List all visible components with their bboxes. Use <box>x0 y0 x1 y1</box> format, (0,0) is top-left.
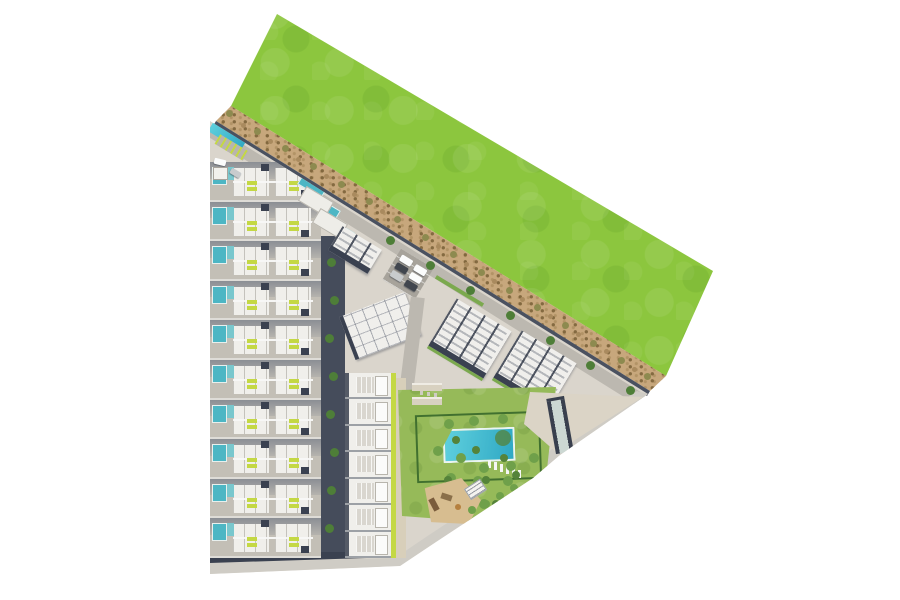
development-ground <box>0 0 900 600</box>
lime-awning <box>289 543 299 547</box>
townhouse-row <box>209 479 321 519</box>
lime-awning <box>247 339 257 343</box>
lime-awning <box>289 425 299 429</box>
lime-awning <box>247 543 257 547</box>
lime-awning <box>247 227 257 231</box>
pool-deck <box>227 523 234 536</box>
dark-roof-hatch <box>261 283 269 290</box>
roof-ridge <box>233 419 313 421</box>
roof-panel <box>356 403 374 419</box>
apartment-unit <box>345 505 391 531</box>
dark-roof-hatch <box>261 164 269 171</box>
pool-deck <box>227 325 234 338</box>
shrub-row <box>226 110 233 117</box>
lime-awning <box>289 537 299 541</box>
roof-terrace <box>375 535 388 555</box>
apartment-unit <box>345 479 391 505</box>
pool-deck <box>227 246 234 259</box>
dark-roof-hatch <box>301 428 309 435</box>
garden-trees <box>444 419 454 429</box>
townhouse-row <box>209 241 321 281</box>
private-pool <box>212 405 227 423</box>
roof-ridge <box>233 339 313 341</box>
lime-awning <box>247 221 257 225</box>
dark-roof-hatch <box>301 269 309 276</box>
roof-terrace <box>375 482 388 502</box>
lime-awning <box>289 419 299 423</box>
apartment-strip <box>345 373 391 558</box>
dark-roof-hatch <box>261 441 269 448</box>
lime-awning <box>289 504 299 508</box>
dark-roof-hatch <box>301 388 309 395</box>
car-park <box>382 249 433 299</box>
road-palm-trees <box>386 236 395 245</box>
roof-ridge <box>233 379 313 381</box>
alley-palm-trees <box>327 258 336 267</box>
lime-awning <box>247 300 257 304</box>
lime-awning <box>289 498 299 502</box>
roof-ridge <box>233 221 313 223</box>
roof-ridge <box>233 300 313 302</box>
private-pool <box>212 444 227 462</box>
roof-panel <box>356 536 374 552</box>
roof-terrace <box>375 429 388 449</box>
roof-ridge <box>233 458 313 460</box>
roof-ridge <box>233 537 313 539</box>
lime-awning <box>247 266 257 270</box>
lime-awning <box>247 306 257 310</box>
pool-deck <box>227 484 234 497</box>
private-pool <box>212 246 227 264</box>
lime-awning <box>247 379 257 383</box>
lime-awning <box>289 385 299 389</box>
lime-awning <box>289 464 299 468</box>
lime-awning <box>247 464 257 468</box>
roof-ridge <box>233 498 313 500</box>
private-pool <box>212 484 227 502</box>
lime-awning <box>289 339 299 343</box>
dark-roof-hatch <box>261 204 269 211</box>
townhouse-row <box>209 281 321 321</box>
lime-awning <box>247 458 257 462</box>
lime-awning <box>247 425 257 429</box>
roof-panel <box>356 430 374 446</box>
townhouse-row <box>209 360 321 400</box>
central-alley-road <box>318 236 345 552</box>
private-pool <box>212 207 227 225</box>
entrance-kiosk <box>213 167 228 180</box>
dark-roof-hatch <box>301 546 309 553</box>
pool-deck <box>227 405 234 418</box>
private-pool <box>212 523 227 541</box>
townhouse-column <box>209 162 321 558</box>
lime-awning <box>289 260 299 264</box>
dark-roof-hatch <box>301 230 309 237</box>
roof-panel <box>356 509 374 525</box>
lime-awning <box>289 379 299 383</box>
unit-shadow-edge <box>345 479 349 503</box>
private-pool <box>212 286 227 304</box>
apartment-unit <box>345 426 391 452</box>
pool-deck <box>227 365 234 378</box>
left-sand-path <box>202 428 210 568</box>
dark-roof-hatch <box>301 467 309 474</box>
palm-over-pool <box>495 430 511 446</box>
dark-roof-hatch <box>261 362 269 369</box>
play-equipment <box>455 504 461 510</box>
lime-awning <box>289 345 299 349</box>
site-plan <box>0 0 900 600</box>
apartment-unit <box>345 399 391 425</box>
dark-roof-hatch <box>261 402 269 409</box>
private-pool <box>212 365 227 383</box>
townhouse-row <box>209 202 321 242</box>
unit-shadow-edge <box>345 373 349 397</box>
dark-roof-hatch <box>301 309 309 316</box>
lime-awning <box>247 181 257 185</box>
row-divider <box>209 556 321 558</box>
lime-awning <box>247 260 257 264</box>
dark-roof-hatch <box>261 520 269 527</box>
pergola-loungers <box>420 391 423 395</box>
dark-roof-hatch <box>261 322 269 329</box>
lime-awning <box>289 221 299 225</box>
townhouse-row <box>209 320 321 360</box>
path-trees <box>468 506 476 514</box>
apartment-unit <box>345 373 391 399</box>
unit-shadow-edge <box>345 426 349 450</box>
pergola-row <box>412 383 442 391</box>
lime-awning <box>247 537 257 541</box>
play-equipment <box>440 492 452 501</box>
shrub-row-2 <box>241 123 246 128</box>
lime-awning <box>247 385 257 389</box>
lime-awning <box>289 458 299 462</box>
roof-panel <box>356 456 374 472</box>
apartment-unit <box>345 532 391 558</box>
lime-awning <box>247 187 257 191</box>
pool-deck <box>227 444 234 457</box>
lime-awning <box>289 306 299 310</box>
lime-awning <box>247 504 257 508</box>
lime-awning <box>247 345 257 349</box>
lime-awning <box>247 498 257 502</box>
townhouse-row <box>209 439 321 479</box>
unit-shadow-edge <box>345 532 349 556</box>
roof-panel <box>356 483 374 499</box>
townhouse-row <box>209 518 321 558</box>
lime-awning <box>289 227 299 231</box>
sun-loungers <box>488 460 491 468</box>
pergola-row <box>412 397 442 405</box>
pool-deck <box>227 207 234 220</box>
garden-trees-dark <box>452 436 460 444</box>
pool-deck <box>227 286 234 299</box>
townhouse-row <box>209 400 321 440</box>
lime-awning <box>289 187 299 191</box>
lime-awning <box>247 419 257 423</box>
unit-shadow-edge <box>345 452 349 476</box>
unit-shadow-edge <box>345 505 349 529</box>
roof-terrace <box>375 455 388 475</box>
roof-terrace <box>375 402 388 422</box>
lime-awning <box>289 300 299 304</box>
dark-roof-hatch <box>301 348 309 355</box>
unit-shadow-edge <box>345 399 349 423</box>
dark-roof-hatch <box>261 481 269 488</box>
private-pool <box>212 325 227 343</box>
roof-terrace <box>375 508 388 528</box>
lime-awning <box>289 266 299 270</box>
dark-roof-hatch <box>261 243 269 250</box>
roof-panel <box>356 377 374 393</box>
play-ship <box>428 497 439 511</box>
roof-ridge <box>233 260 313 262</box>
roof-terrace <box>375 376 388 396</box>
apartment-unit <box>345 452 391 478</box>
dark-roof-hatch <box>301 507 309 514</box>
